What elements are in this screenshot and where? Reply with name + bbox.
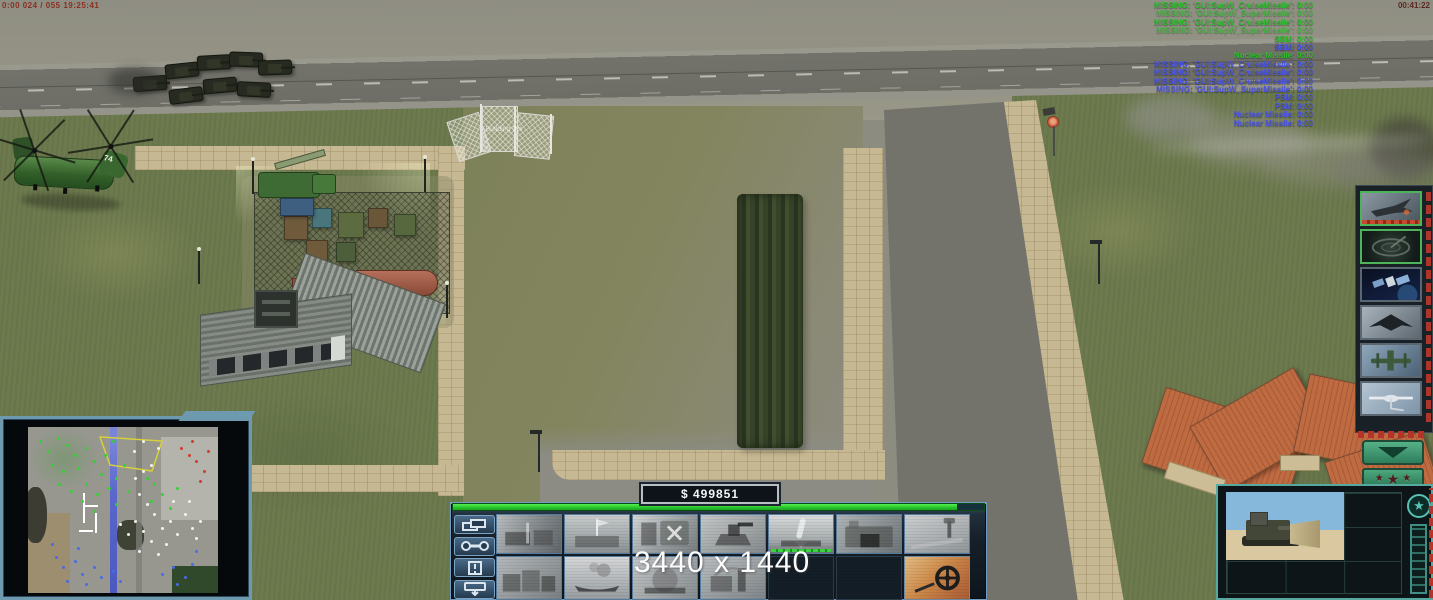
veterancy-star-icon: ★ — [1407, 494, 1431, 518]
minimap-unit-dot-white — [150, 464, 153, 467]
helicopter-shadow — [20, 192, 121, 213]
rank-star-icon: ★ — [1402, 474, 1411, 484]
rooftop-vent — [254, 290, 298, 328]
minimap-unit-dot-blue — [119, 580, 122, 583]
superweapon-timer-list: MISSING: 'GUI:SupW_CruiseMissile': 0:00M… — [1154, 2, 1313, 128]
house-wall — [1280, 455, 1320, 471]
minimap-unit-dot-green — [112, 440, 115, 443]
supply-truck[interactable] — [258, 172, 320, 198]
minimap-unit-dot-white — [195, 537, 198, 540]
minimap-unit-dot-white — [161, 527, 164, 530]
warehouse-windows — [209, 342, 337, 376]
red-frame-ticks — [1358, 431, 1428, 438]
command-tab-column — [454, 515, 496, 600]
landing-gear — [33, 184, 37, 190]
minimap-unit-dot-green — [123, 464, 126, 467]
minimap-unit-dot-red — [180, 447, 183, 450]
landing-gear — [95, 185, 99, 191]
curb-left — [843, 148, 883, 470]
rotor-hub — [32, 148, 37, 153]
selected-unit-panel[interactable]: ★ — [1216, 484, 1433, 600]
repair-button[interactable] — [454, 537, 495, 556]
landing-gear — [63, 188, 67, 194]
minimap-unit-dot-white — [133, 450, 136, 453]
sign-pole — [1053, 126, 1055, 156]
floodlight-pole — [446, 284, 448, 318]
superweapon-timer-message: MISSING: 'GUI:SupW_SuperMissile': 0:00 — [1154, 10, 1313, 18]
minimap-unit-dot-green — [51, 464, 54, 467]
build-mine-detector-button[interactable] — [904, 556, 970, 600]
build-barracks-button[interactable] — [564, 514, 630, 554]
minimap-unit-dot-red — [203, 470, 206, 473]
build-war-factory-button[interactable] — [836, 514, 902, 554]
stone-path — [250, 465, 464, 492]
minimap-unit-dot-blue — [74, 560, 77, 563]
minimap-unit-dot-green — [74, 454, 77, 457]
crate — [394, 214, 416, 236]
minimap-unit-dot-green — [150, 500, 153, 503]
supply-truck-cab — [312, 174, 336, 194]
minimap-unit-dot-green — [57, 437, 60, 440]
minimap-view-frustum — [28, 427, 218, 593]
superweapon-timer-message: MISSING: 'GUI:SupW_SuperMissile': 0:00 — [1154, 27, 1313, 35]
sidebar-satellite-button[interactable] — [1360, 267, 1422, 302]
tarp-crate — [280, 198, 314, 216]
red-frame-ticks — [1429, 488, 1433, 598]
hedge-row — [737, 194, 803, 448]
floodlight-pole — [252, 160, 254, 194]
minimap-unit-dot-red — [207, 450, 210, 453]
game-screen: 74 — [0, 0, 1433, 600]
minimap-unit-dot-green — [169, 507, 172, 510]
minimap-unit-dot-white — [142, 530, 145, 533]
red-frame-ticks — [1426, 192, 1431, 426]
fence-panel — [514, 112, 554, 160]
minimap-unit-dot-blue — [51, 543, 54, 546]
minimap-unit-dot-white — [150, 540, 153, 543]
chevron-down-icon — [1378, 447, 1408, 458]
smoke-cloud — [1330, 150, 1433, 190]
power-bar-remainder — [957, 504, 984, 510]
game-clock: 00:41:22 — [1398, 1, 1430, 10]
warehouse-door — [331, 335, 345, 361]
helicopter-number-label: 74 — [103, 153, 114, 164]
exhaust-smoke — [108, 68, 160, 94]
sidebar-gunship-button[interactable] — [1360, 343, 1422, 378]
chinook-helicopter[interactable]: 74 — [2, 125, 137, 224]
minimap-unit-dot-green — [85, 447, 88, 450]
tank-unit[interactable] — [197, 54, 232, 71]
minimap-unit-dot-green — [127, 490, 130, 493]
debug-readout: 0:00 024 / 055 19:25:41 — [2, 1, 99, 10]
dozer-blade — [1290, 520, 1320, 548]
minimap-unit-dot-blue — [66, 580, 69, 583]
fence-under-construction[interactable]: Building 0% — [452, 100, 556, 164]
tank-unit[interactable] — [258, 59, 293, 75]
minimap-unit-dot-blue — [112, 570, 115, 573]
tank-unit[interactable] — [202, 77, 237, 95]
power-bar — [452, 503, 985, 511]
unit-command-sidebar — [1355, 185, 1433, 433]
minimap[interactable] — [28, 427, 218, 593]
structures-tab-button[interactable] — [454, 515, 495, 534]
sidebar-stealth-bomber-button[interactable] — [1360, 305, 1422, 340]
crate — [336, 242, 356, 262]
curb-horizontal — [552, 450, 885, 480]
minimap-unit-dot-green — [93, 460, 96, 463]
building-progress-label: Building 0% — [458, 126, 550, 133]
beacon-button[interactable] — [454, 558, 495, 577]
sidebar-strike-fighter-button[interactable] — [1360, 191, 1422, 226]
sidebar-collapse-button[interactable] — [1362, 440, 1424, 465]
superweapon-timer-message: Nuclear Missile: 0:00 — [1154, 120, 1313, 128]
minimap-unit-dot-green — [93, 510, 96, 513]
minimap-unit-dot-white — [165, 543, 168, 546]
minimap-unit-dot-green — [104, 454, 107, 457]
empty-slot — [836, 556, 902, 600]
minimap-unit-dot-green — [146, 477, 149, 480]
minimap-unit-dot-green — [66, 444, 69, 447]
rank-star-icon: ★ — [1375, 474, 1384, 484]
minimap-unit-dot-white — [199, 520, 202, 523]
build-shipyard-button[interactable] — [564, 556, 630, 600]
sidebar-drone-button[interactable] — [1360, 381, 1422, 416]
build-industrial-plant-button[interactable] — [496, 556, 562, 600]
recharge-bar — [1362, 220, 1420, 224]
money-display: $ 499851 — [641, 484, 779, 504]
crate — [284, 216, 308, 240]
resolution-watermark: 3440 x 1440 — [634, 546, 810, 580]
minimap-frame-decoration — [178, 411, 255, 421]
crate — [338, 212, 364, 238]
crate — [368, 208, 388, 228]
minimap-unit-dot-white — [188, 500, 191, 503]
tank-unit[interactable] — [237, 81, 272, 98]
crate — [312, 208, 332, 228]
floodlight-pole — [198, 250, 200, 284]
fence-post — [550, 114, 552, 154]
build-airfield-button[interactable] — [904, 514, 970, 554]
minimap-unit-dot-green — [108, 487, 111, 490]
selected-unit-portrait[interactable] — [1226, 492, 1344, 560]
experience-bar — [1410, 524, 1427, 594]
dozer-cab — [1250, 512, 1268, 526]
sell-button[interactable] — [454, 580, 495, 599]
floodlight-pole — [424, 158, 426, 192]
minimap-unit-dot-white — [169, 520, 172, 523]
build-supply-dock-button[interactable] — [496, 514, 562, 554]
minimap-unit-dot-green — [70, 490, 73, 493]
minimap-unit-dot-green — [176, 487, 179, 490]
minimap-unit-dot-red — [188, 454, 191, 457]
sidebar-radar-scan-button[interactable] — [1360, 229, 1422, 264]
supply-depot[interactable] — [196, 158, 454, 378]
